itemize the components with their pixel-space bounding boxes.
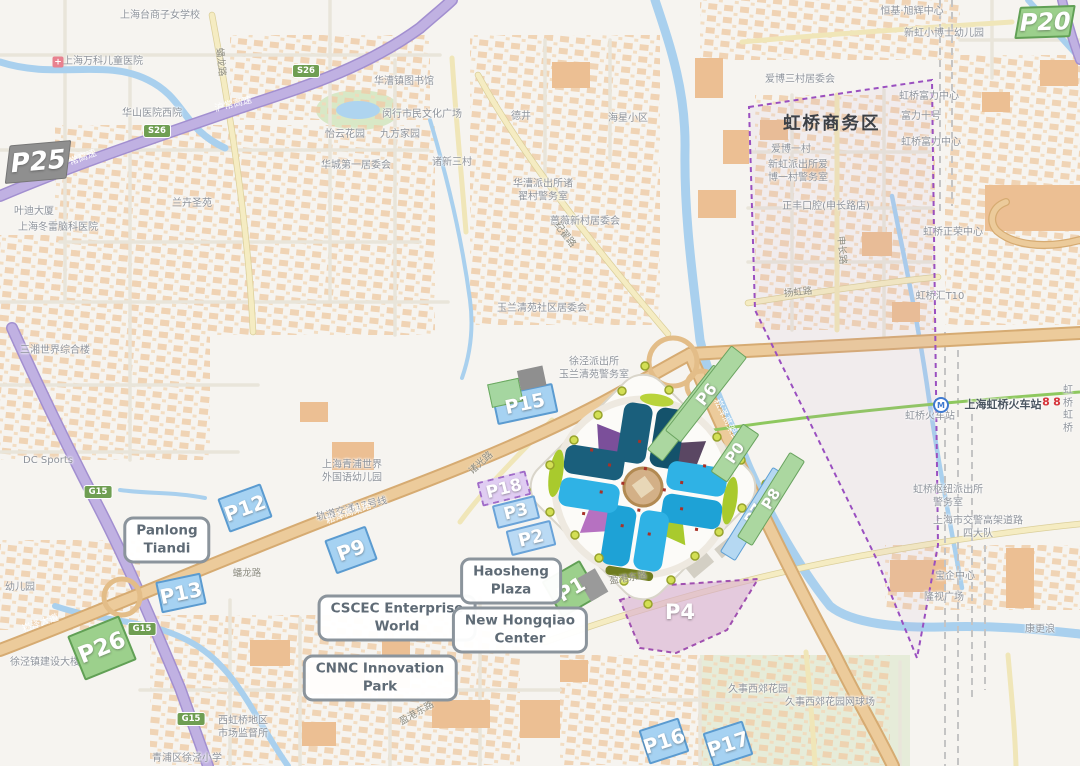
map-label: 上海青浦世界 外国语幼儿园 — [322, 460, 382, 485]
map-label: 三湘世界综合楼 — [20, 345, 90, 358]
map-label: 新虹小博士幼儿园 — [904, 28, 984, 41]
map-label: 久事西郊花园 — [728, 684, 788, 697]
map-label: 海星小区 — [608, 113, 648, 126]
metro-logo-icon: 8 — [1053, 396, 1061, 409]
road-label: 蟠龙路 — [233, 565, 262, 579]
parking-marker-label: P2 — [516, 525, 546, 552]
map-label: 爱博一村 — [771, 144, 811, 157]
road-label: 申长路 — [835, 235, 851, 265]
map-label: 新虹派出所爱 博一村警务室 — [768, 160, 828, 185]
parking-marker-label: P20 — [1017, 7, 1073, 37]
place-card-panlong-tiandi[interactable]: Panlong Tiandi — [123, 516, 210, 563]
district-label-hongqiao-cbd: 虹桥商务区 — [783, 110, 881, 135]
map-label: 虹桥正荣中心 — [923, 227, 983, 240]
parking-marker-label: P9 — [333, 534, 368, 566]
map-label: 诸新三村 — [432, 157, 472, 170]
map-label: 上海冬雷脑科医院 — [18, 222, 98, 235]
parking-marker-label: P16 — [640, 723, 688, 759]
parking-marker-p4[interactable]: P4 — [655, 597, 705, 627]
map-label: 闵行市民文化广场 — [382, 109, 462, 122]
metro-station-icon: M — [933, 397, 949, 413]
map-label: 叶迪大厦 — [14, 206, 54, 219]
map-label: 虹桥汇T10 — [916, 291, 965, 304]
map-label: 德井 — [511, 111, 531, 124]
map-label: 玉兰清苑社区居委会 — [497, 303, 587, 316]
map-label: 怡云花园 — [325, 129, 365, 142]
place-card-cnnc-innovation-park[interactable]: CNNC Innovation Park — [303, 654, 458, 701]
parking-marker-label: P4 — [665, 600, 695, 624]
road-badge-g15: G15 — [84, 485, 113, 499]
map-label: 华山医院西院 — [122, 108, 182, 121]
map-label: 虹桥富力中心 — [901, 137, 961, 150]
map-label: 幼儿园 — [5, 582, 35, 595]
map-label: 西虹桥地区 市场监督所 — [218, 716, 268, 741]
parking-marker-label: P26 — [74, 627, 129, 669]
map-label: 华漕派出所诸 翟村警务室 — [513, 179, 573, 204]
map-label: 九方家园 — [380, 129, 420, 142]
map-label: 徐泾派出所 玉兰清苑警务室 — [559, 357, 629, 382]
map-label: 兰卉圣苑 — [172, 198, 212, 211]
parking-marker-label: P13 — [158, 577, 205, 609]
map-label: 久事西郊花园网球场 — [785, 697, 875, 710]
map-label: 恒基·旭辉中心 — [880, 6, 943, 19]
map-label: 隆视广场 — [924, 592, 964, 605]
metro-logo-icon: 8 — [1042, 396, 1050, 409]
map-label: 上海万科儿童医院 — [63, 56, 143, 69]
road-badge-s26: S26 — [143, 124, 171, 138]
road-badge-g15: G15 — [128, 622, 157, 636]
map-label: 华漕镇图书馆 — [374, 76, 434, 89]
place-card-haosheng-plaza[interactable]: Haosheng Plaza — [460, 557, 562, 604]
pond — [336, 101, 380, 119]
map-label: DC Sports — [23, 455, 73, 468]
map-label: 上海虹桥火车站 — [965, 398, 1042, 412]
parking-marker-label: P17 — [704, 726, 752, 762]
map-label: 虹桥火车站 — [905, 411, 955, 424]
map-canvas[interactable]: 虹桥商务区 P25P20P15P18P3P2P1P4P5P6P0P7P8P9P1… — [0, 0, 1080, 766]
road-badge-g15: G15 — [177, 712, 206, 726]
map-label: 爱博三村居委会 — [765, 74, 835, 87]
map-label: 虹桥 虹桥 — [1062, 385, 1074, 435]
parking-marker-label: P18 — [484, 474, 524, 502]
map-label: 青浦区徐泾小学 — [152, 753, 222, 766]
road-label: 蟠龙路 — [214, 47, 231, 77]
map-label: 虹桥枢纽派出所 警务室 — [913, 485, 983, 510]
map-label: 上海台商子女学校 — [120, 10, 200, 23]
map-label: 虹桥富力中心 — [899, 91, 959, 104]
map-label: 富力十号 — [901, 111, 941, 124]
map-label: 华城第一居委会 — [321, 160, 391, 173]
map-label: 宝企中心 — [935, 571, 975, 584]
parking-marker-label: P25 — [9, 144, 68, 179]
map-label: 正丰口腔(申长路店) — [782, 201, 870, 214]
hospital-icon: + — [53, 57, 64, 68]
map-label: 康更浪 — [1025, 624, 1055, 637]
parking-marker-label: P15 — [503, 389, 547, 419]
parking-marker-label: P3 — [502, 499, 530, 524]
parking-marker-p20[interactable]: P20 — [1014, 5, 1076, 39]
road-badge-s26: S26 — [292, 64, 320, 78]
map-label: 徐泾镇建设大楼 — [10, 657, 80, 670]
road-label: 扬虹路 — [783, 283, 813, 300]
map-label: 上海市交警高架道路 四大队 — [933, 516, 1023, 541]
parking-marker-label: P12 — [221, 489, 269, 526]
place-card-new-hongqiao-center[interactable]: New Hongqiao Center — [452, 606, 588, 653]
parking-marker-p25[interactable]: P25 — [5, 140, 71, 184]
